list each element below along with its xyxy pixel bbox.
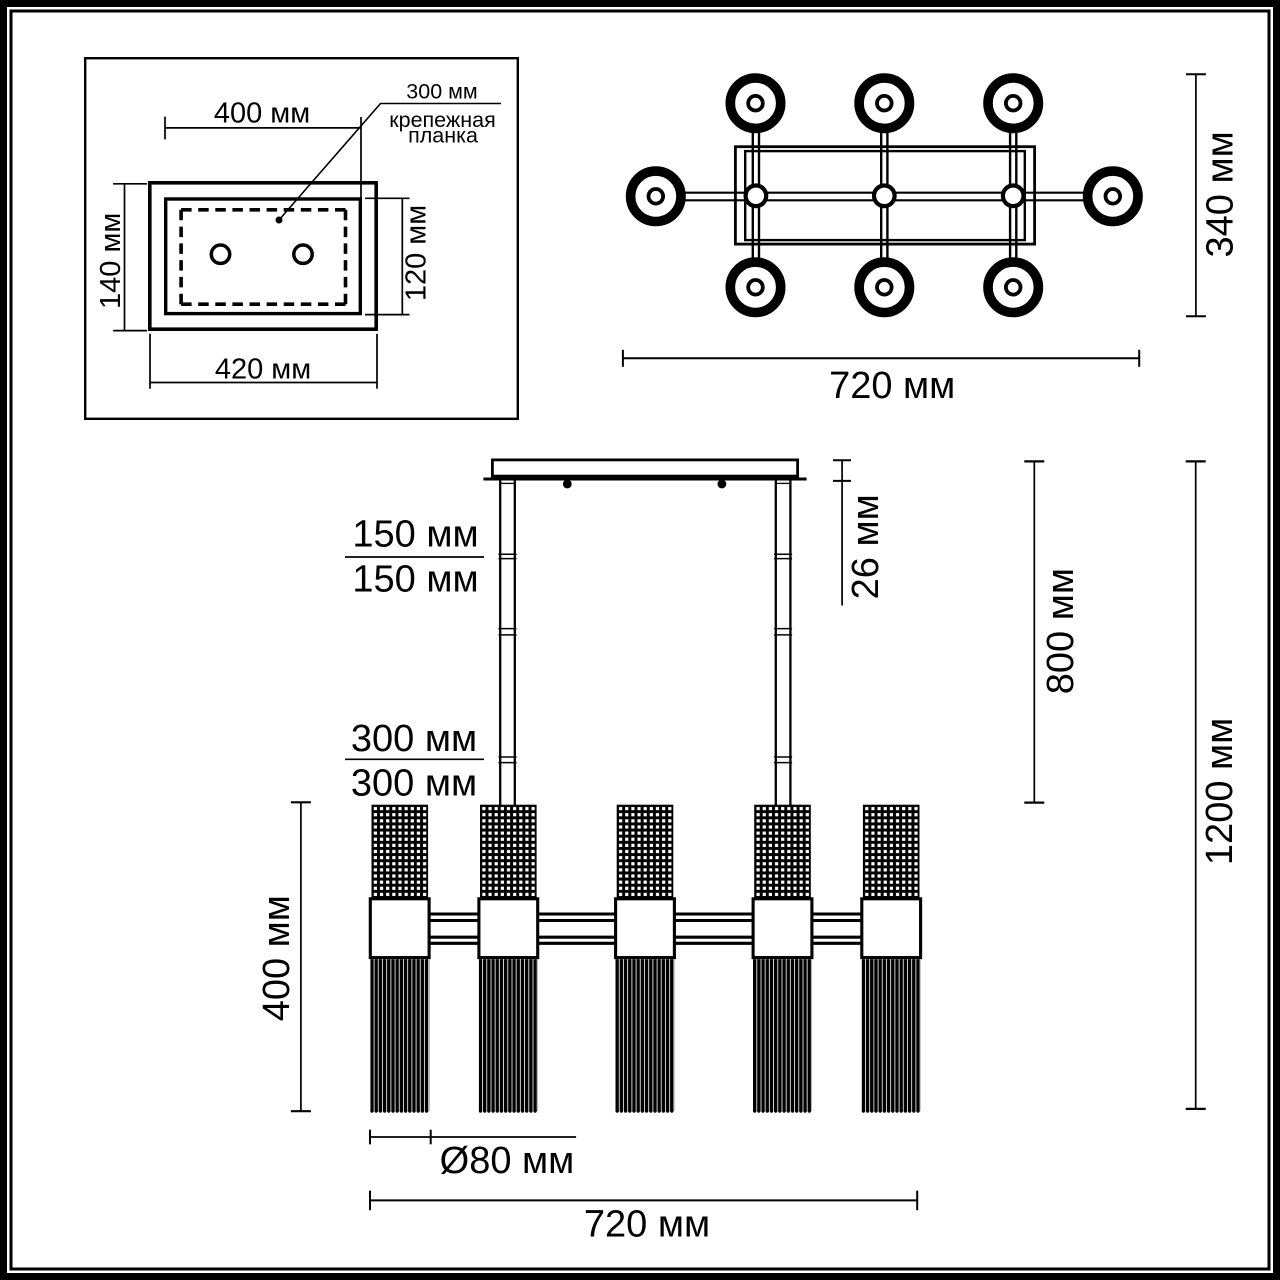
svg-text:120 мм: 120 мм (400, 205, 432, 301)
svg-text:400 мм: 400 мм (256, 895, 298, 1021)
svg-text:300 мм: 300 мм (351, 763, 477, 805)
svg-text:1200 мм: 1200 мм (1199, 718, 1241, 865)
svg-text:400 мм: 400 мм (214, 98, 310, 130)
svg-text:планка: планка (408, 124, 478, 148)
svg-text:720 мм: 720 мм (584, 1203, 710, 1245)
svg-text:300 мм: 300 мм (351, 718, 477, 760)
svg-text:800 мм: 800 мм (1040, 568, 1082, 694)
svg-text:26 мм: 26 мм (845, 494, 887, 599)
svg-text:140 мм: 140 мм (95, 213, 127, 309)
svg-text:150 мм: 150 мм (352, 514, 478, 556)
svg-text:420 мм: 420 мм (215, 354, 311, 386)
svg-text:Ø80 мм: Ø80 мм (440, 1140, 575, 1182)
svg-text:720 мм: 720 мм (829, 365, 955, 407)
svg-text:150 мм: 150 мм (352, 559, 478, 601)
svg-text:340 мм: 340 мм (1200, 131, 1242, 257)
svg-text:300 мм: 300 мм (406, 79, 477, 103)
